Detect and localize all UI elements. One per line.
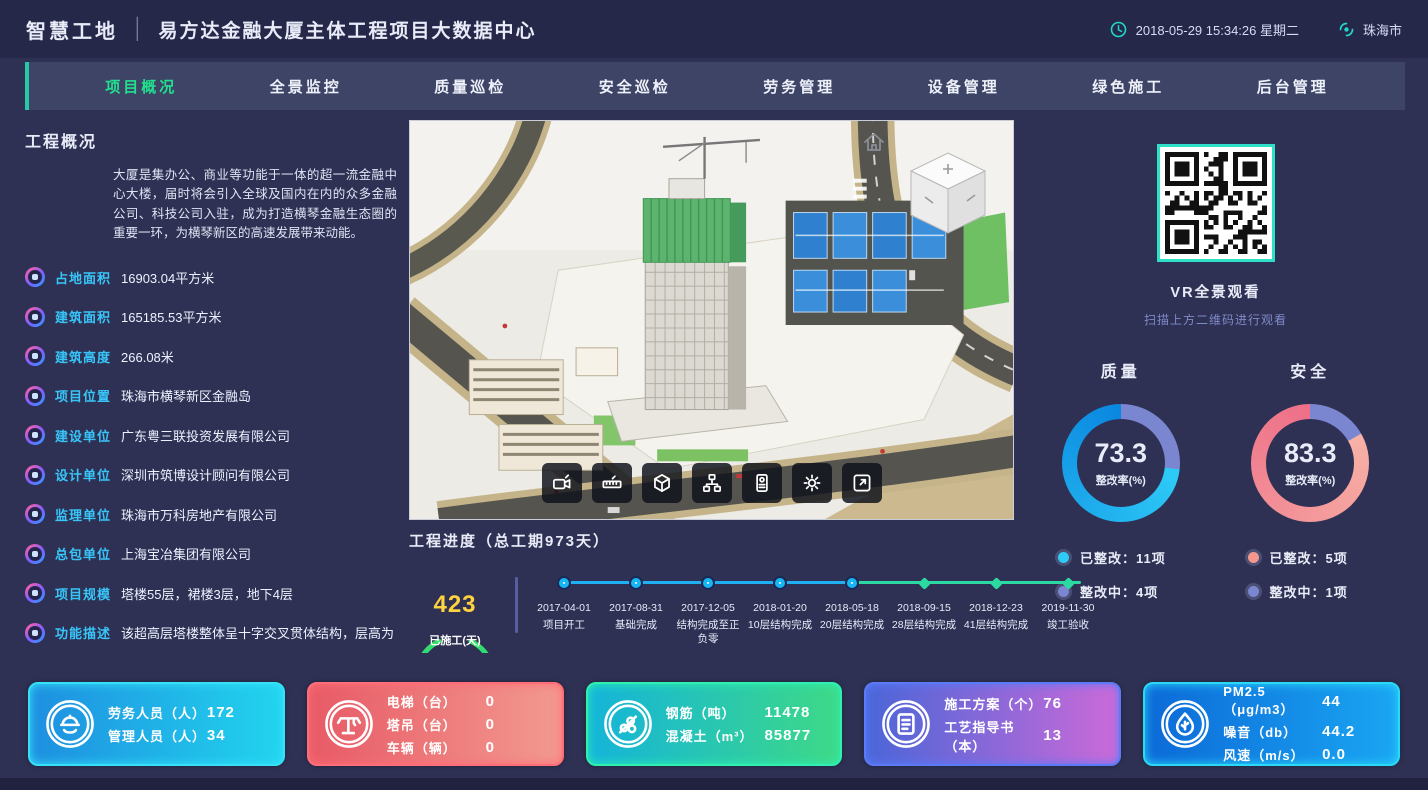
milestone-dot-done	[559, 578, 569, 588]
milestone-node	[559, 575, 569, 591]
viewer-toolbar	[542, 463, 882, 503]
stat-row: 钢筋（吨）11478	[666, 703, 831, 722]
stat-card-rows: 施工方案（个）76工艺指导书（本）13	[944, 694, 1109, 755]
milestone-date: 2019-11-30	[1042, 602, 1095, 614]
legend-dot-icon	[1248, 552, 1259, 563]
overview-field-row: 建筑高度266.08米	[25, 337, 397, 377]
stat-card-rows: 钢筋（吨）11478混凝土（m³）85877	[666, 703, 831, 745]
milestone-dot-pending	[1062, 577, 1075, 590]
stat-label: 塔吊（台）	[387, 715, 486, 734]
field-bullet-icon	[25, 623, 45, 643]
stat-label: 噪音（db）	[1223, 722, 1322, 741]
stat-row: 管理人员（人）34	[108, 726, 273, 745]
timeline-items: 2017-04-01项目开工2017-08-31基础完成2017-12-05结构…	[528, 575, 1104, 646]
safety-unit: 整改率(%)	[1285, 472, 1335, 488]
location-icon	[1338, 21, 1355, 38]
stat-row: PM2.5（μg/m3）44	[1223, 684, 1388, 718]
app-header: 智慧工地 │ 易方达金融大厦主体工程项目大数据中心 2018-05-29 15:…	[0, 0, 1428, 58]
stat-row: 电梯（台）0	[387, 692, 552, 711]
overview-field-row: 建设单位广东粤三联投资发展有限公司	[25, 416, 397, 456]
days-built-label: 已施工(天)	[409, 632, 501, 648]
fullscreen-icon[interactable]	[842, 463, 882, 503]
stat-value: 76	[1043, 695, 1062, 712]
milestone-label: 28层结构完成	[888, 618, 960, 632]
structure-icon[interactable]	[692, 463, 732, 503]
nav-tab-4[interactable]: 劳务管理	[717, 76, 882, 97]
stat-card-3[interactable]: 施工方案（个）76工艺指导书（本）13	[864, 682, 1121, 766]
field-bullet-icon	[25, 425, 45, 445]
field-label: 建筑高度	[55, 347, 111, 366]
app-brand: 智慧工地	[26, 15, 118, 44]
stat-card-rows: 劳务人员（人）172管理人员（人）34	[108, 703, 273, 745]
overview-field-row: 设计单位深圳市筑博设计顾问有限公司	[25, 455, 397, 495]
legend-label: 已整改：5项	[1270, 548, 1348, 567]
timeline-milestone[interactable]: 2019-11-30竣工验收	[1032, 575, 1104, 646]
milestone-node	[847, 575, 857, 591]
city-text: 珠海市	[1363, 20, 1402, 39]
measure-icon[interactable]	[592, 463, 632, 503]
quality-unit: 整改率(%)	[1096, 472, 1146, 488]
overview-fields: 占地面积16903.04平方米建筑面积165185.53平方米建筑高度266.0…	[25, 258, 397, 653]
home-icon[interactable]	[862, 131, 886, 158]
stat-card-0[interactable]: 劳务人员（人）172管理人员（人）34	[28, 682, 285, 766]
nav-tab-0[interactable]: 项目概况	[59, 76, 224, 97]
stat-value: 11478	[764, 704, 810, 721]
timeline-milestone[interactable]: 2017-12-05结构完成至正负零	[672, 575, 744, 646]
overview-field-row: 功能描述该超高层塔楼整体呈十字交叉贯体结构，层高为	[25, 613, 397, 653]
stat-card-rows: 电梯（台）0塔吊（台）0车辆（辆）0	[387, 692, 552, 757]
overview-field-row: 项目位置珠海市横琴新区金融岛	[25, 376, 397, 416]
header-status: 2018-05-29 15:34:26 星期二 珠海市	[1110, 20, 1402, 39]
badge-icon[interactable]	[742, 463, 782, 503]
milestone-label: 项目开工	[528, 618, 600, 632]
nav-tab-3[interactable]: 安全巡检	[553, 76, 718, 97]
stat-row: 噪音（db）44.2	[1223, 722, 1388, 741]
nav-tab-6[interactable]: 绿色施工	[1046, 76, 1211, 97]
stat-label: 施工方案（个）	[944, 694, 1043, 713]
milestone-dot-done	[703, 578, 713, 588]
stat-value: 172	[207, 704, 235, 721]
field-bullet-icon	[25, 307, 45, 327]
milestone-node	[775, 575, 785, 591]
field-value: 266.08米	[121, 347, 174, 366]
stat-card-rows: PM2.5（μg/m3）44噪音（db）44.2风速（m/s）0.0	[1223, 684, 1388, 764]
nav-tab-1[interactable]: 全景监控	[224, 76, 389, 97]
safety-metric: 安全 83.3 整改率(%) 已整改：5项整改中：1项	[1216, 358, 1406, 601]
timeline-milestone[interactable]: 2018-05-1820层结构完成	[816, 575, 888, 646]
project-overview-panel: 工程概况 大厦是集办公、商业等功能于一体的超一流金融中心大楼，届时将会引入全球及…	[25, 120, 397, 670]
stat-value: 0.0	[1322, 746, 1346, 763]
milestone-dot-done	[631, 578, 641, 588]
crane-icon	[323, 698, 375, 750]
stat-label: 劳务人员（人）	[108, 703, 207, 722]
nav-tab-7[interactable]: 后台管理	[1211, 76, 1376, 97]
milestone-node	[1064, 575, 1073, 591]
qr-code[interactable]	[1157, 144, 1275, 262]
stat-row: 劳务人员（人）172	[108, 703, 273, 722]
milestone-label: 竣工验收	[1032, 618, 1104, 632]
milestone-date: 2018-09-15	[897, 602, 951, 614]
stat-cards: 劳务人员（人）172管理人员（人）34电梯（台）0塔吊（台）0车辆（辆）0钢筋（…	[0, 670, 1428, 766]
safety-title: 安全	[1216, 358, 1406, 382]
cube-icon[interactable]	[642, 463, 682, 503]
vr-title: VR全景观看	[1026, 281, 1405, 302]
stat-row: 塔吊（台）0	[387, 715, 552, 734]
field-label: 监理单位	[55, 505, 111, 524]
progress-section: 工程进度（总工期973天） 423 已施工(天) 2017-04-01项目开工2	[409, 530, 1014, 653]
field-label: 项目位置	[55, 386, 111, 405]
timeline-milestone[interactable]: 2017-04-01项目开工	[528, 575, 600, 646]
overview-field-row: 占地面积16903.04平方米	[25, 258, 397, 298]
stat-value: 34	[207, 727, 226, 744]
days-built-value: 423	[409, 591, 501, 619]
milestone-node	[631, 575, 641, 591]
legend-item: 整改中：1项	[1248, 582, 1348, 601]
nav-tab-2[interactable]: 质量巡检	[388, 76, 553, 97]
field-label: 建设单位	[55, 426, 111, 445]
overview-field-row: 监理单位珠海市万科房地产有限公司	[25, 495, 397, 535]
milestone-label: 基础完成	[600, 618, 672, 632]
milestone-dot-done	[775, 578, 785, 588]
bim-viewer[interactable]	[409, 120, 1014, 520]
milestone-label: 20层结构完成	[816, 618, 888, 632]
milestone-date: 2017-12-05	[681, 602, 735, 614]
milestone-dot-pending	[990, 577, 1003, 590]
stat-label: 管理人员（人）	[108, 726, 207, 745]
field-bullet-icon	[25, 583, 45, 603]
video-icon[interactable]	[542, 463, 582, 503]
legend-dot-icon	[1248, 586, 1259, 597]
overview-field-row: 总包单位上海宝冶集团有限公司	[25, 534, 397, 574]
stat-value: 44.2	[1322, 723, 1355, 740]
field-bullet-icon	[25, 504, 45, 524]
stat-row: 施工方案（个）76	[944, 694, 1109, 713]
overview-field-row: 项目规模塔楼55层，裙楼3层，地下4层	[25, 574, 397, 614]
main-content: 工程概况 大厦是集办公、商业等功能于一体的超一流金融中心大楼，届时将会引入全球及…	[0, 110, 1428, 670]
overview-title: 工程概况	[25, 128, 397, 152]
center-panel: 工程进度（总工期973天） 423 已施工(天) 2017-04-01项目开工2	[409, 120, 1014, 670]
stat-card-2[interactable]: 钢筋（吨）11478混凝土（m³）85877	[586, 682, 843, 766]
rebar-icon	[602, 698, 654, 750]
quality-title: 质量	[1026, 358, 1216, 382]
stat-label: 混凝土（m³）	[666, 726, 765, 745]
milestone-date: 2017-08-31	[609, 602, 663, 614]
field-value: 广东粤三联投资发展有限公司	[121, 426, 290, 445]
field-value: 上海宝冶集团有限公司	[121, 544, 251, 563]
milestone-node	[703, 575, 713, 591]
milestone-label: 41层结构完成	[960, 618, 1032, 632]
milestone-date: 2018-05-18	[825, 602, 879, 614]
legend-item: 已整改：5项	[1248, 548, 1348, 567]
stat-value: 0	[486, 716, 495, 733]
stat-value: 0	[486, 693, 495, 710]
field-label: 占地面积	[55, 268, 111, 287]
stat-card-1[interactable]: 电梯（台）0塔吊（台）0车辆（辆）0	[307, 682, 564, 766]
milestone-label: 10层结构完成	[744, 618, 816, 632]
stat-row: 工艺指导书（本）13	[944, 717, 1109, 755]
field-label: 建筑面积	[55, 307, 111, 326]
page-title: 易方达金融大厦主体工程项目大数据中心	[159, 16, 537, 43]
overview-description: 大厦是集办公、商业等功能于一体的超一流金融中心大楼，届时将会引入全球及国内在内的…	[113, 166, 397, 244]
field-label: 设计单位	[55, 465, 111, 484]
milestone-date: 2018-12-23	[969, 602, 1023, 614]
stat-label: PM2.5（μg/m3）	[1223, 684, 1322, 718]
field-bullet-icon	[25, 544, 45, 564]
field-label: 项目规模	[55, 584, 111, 603]
stat-value: 85877	[764, 727, 811, 744]
safety-legend: 已整改：5项整改中：1项	[1216, 548, 1406, 601]
days-built-gauge: 423 已施工(天)	[409, 561, 501, 653]
quality-donut-chart: 73.3 整改率(%)	[1062, 404, 1180, 522]
stat-row: 风速（m/s）0.0	[1223, 745, 1388, 764]
field-value: 珠海市横琴新区金融岛	[121, 386, 251, 405]
field-label: 功能描述	[55, 623, 111, 642]
field-value: 塔楼55层，裙楼3层，地下4层	[121, 584, 293, 603]
timeline-milestone[interactable]: 2017-08-31基础完成	[600, 575, 672, 646]
safety-donut-chart: 83.3 整改率(%)	[1251, 404, 1369, 522]
stat-value: 13	[1043, 727, 1062, 744]
milestone-date: 2017-04-01	[537, 602, 591, 614]
field-value: 该超高层塔楼整体呈十字交叉贯体结构，层高为	[121, 623, 394, 642]
stat-label: 风速（m/s）	[1223, 745, 1322, 764]
field-bullet-icon	[25, 386, 45, 406]
field-bullet-icon	[25, 267, 45, 287]
settings-icon[interactable]	[792, 463, 832, 503]
legend-label: 整改中：1项	[1270, 582, 1348, 601]
clock-icon	[1110, 21, 1127, 38]
milestone-dot-pending	[918, 577, 931, 590]
datetime-text: 2018-05-29 15:34:26 星期二	[1136, 20, 1299, 39]
environment-icon	[1159, 698, 1211, 750]
header-divider: │	[132, 18, 145, 41]
stat-label: 电梯（台）	[387, 692, 486, 711]
milestone-node	[920, 575, 929, 591]
field-value: 16903.04平方米	[121, 268, 214, 287]
stat-card-4[interactable]: PM2.5（μg/m3）44噪音（db）44.2风速（m/s）0.0	[1143, 682, 1400, 766]
stat-row: 混凝土（m³）85877	[666, 726, 831, 745]
stat-label: 钢筋（吨）	[666, 703, 765, 722]
milestone-label: 结构完成至正负零	[672, 618, 744, 646]
nav-tab-5[interactable]: 设备管理	[882, 76, 1047, 97]
main-nav: 项目概况全景监控质量巡检安全巡检劳务管理设备管理绿色施工后台管理	[25, 62, 1405, 110]
field-value: 165185.53平方米	[121, 307, 221, 326]
view-cube-icon[interactable]	[905, 147, 991, 244]
vr-subtitle: 扫描上方二维码进行观看	[1026, 311, 1405, 328]
field-label: 总包单位	[55, 544, 111, 563]
progress-divider	[515, 577, 518, 633]
progress-title: 工程进度（总工期973天）	[409, 530, 1014, 551]
field-value: 珠海市万科房地产有限公司	[121, 505, 277, 524]
overview-field-row: 建筑面积165185.53平方米	[25, 297, 397, 337]
quality-value: 73.3	[1094, 438, 1147, 469]
field-bullet-icon	[25, 465, 45, 485]
milestone-date: 2018-01-20	[753, 602, 807, 614]
milestone-dot-done	[847, 578, 857, 588]
timeline-milestone[interactable]: 2018-09-1528层结构完成	[888, 575, 960, 646]
stat-value: 44	[1322, 693, 1341, 710]
stat-label: 工艺指导书（本）	[944, 717, 1043, 755]
stat-row: 车辆（辆）0	[387, 738, 552, 757]
worker-icon	[44, 698, 96, 750]
field-bullet-icon	[25, 346, 45, 366]
stat-label: 车辆（辆）	[387, 738, 486, 757]
field-value: 深圳市筑博设计顾问有限公司	[121, 465, 290, 484]
vr-card: VR全景观看 扫描上方二维码进行观看	[1026, 120, 1405, 328]
timeline-milestone[interactable]: 2018-12-2341层结构完成	[960, 575, 1032, 646]
milestone-node	[992, 575, 1001, 591]
progress-timeline: 2017-04-01项目开工2017-08-31基础完成2017-12-05结构…	[528, 561, 1104, 646]
safety-value: 83.3	[1284, 438, 1337, 469]
timeline-milestone[interactable]: 2018-01-2010层结构完成	[744, 575, 816, 646]
stat-value: 0	[486, 739, 495, 756]
document-icon	[880, 698, 932, 750]
